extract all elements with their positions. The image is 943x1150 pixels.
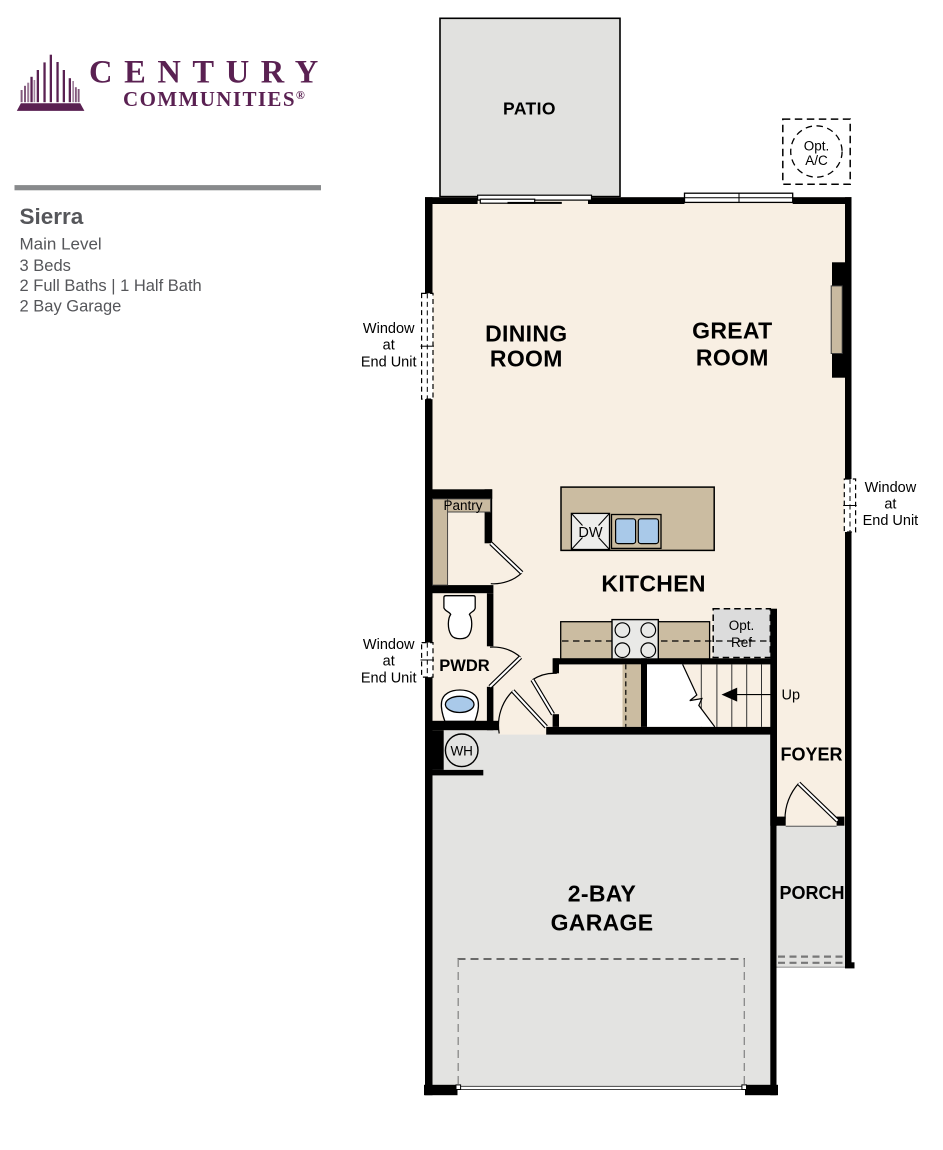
- svg-text:End Unit: End Unit: [863, 513, 919, 529]
- svg-text:ROOM: ROOM: [490, 346, 563, 372]
- svg-text:End Unit: End Unit: [361, 354, 417, 370]
- svg-text:ROOM: ROOM: [696, 345, 769, 371]
- svg-text:A/C: A/C: [805, 153, 828, 168]
- svg-text:Sierra: Sierra: [20, 204, 84, 229]
- svg-text:DW: DW: [578, 525, 602, 541]
- svg-text:at: at: [383, 654, 395, 670]
- svg-text:PWDR: PWDR: [439, 657, 489, 675]
- svg-text:COMMUNITIES®: COMMUNITIES®: [123, 87, 306, 111]
- svg-text:Ref: Ref: [731, 635, 752, 650]
- svg-text:Opt.: Opt.: [804, 139, 830, 154]
- svg-text:Main Level: Main Level: [20, 234, 102, 253]
- svg-text:at: at: [383, 338, 395, 354]
- svg-text:CENTURY: CENTURY: [89, 54, 330, 90]
- svg-text:3 Beds: 3 Beds: [20, 257, 71, 275]
- svg-text:Pantry: Pantry: [443, 498, 482, 513]
- svg-text:2 Full Baths | 1 Half Bath: 2 Full Baths | 1 Half Bath: [20, 277, 202, 295]
- svg-text:Up: Up: [782, 688, 801, 704]
- svg-text:End Unit: End Unit: [361, 670, 417, 686]
- svg-text:WH: WH: [450, 743, 473, 758]
- svg-text:Window: Window: [865, 480, 917, 496]
- svg-text:KITCHEN: KITCHEN: [601, 571, 705, 597]
- svg-text:Opt.: Opt.: [729, 618, 755, 633]
- svg-text:at: at: [884, 497, 896, 513]
- svg-text:DINING: DINING: [485, 321, 567, 347]
- svg-text:GREAT: GREAT: [692, 318, 772, 344]
- svg-text:GARAGE: GARAGE: [551, 910, 654, 936]
- svg-text:FOYER: FOYER: [780, 745, 842, 765]
- svg-text:Window: Window: [363, 637, 415, 653]
- svg-text:2-BAY: 2-BAY: [568, 881, 636, 907]
- svg-text:2 Bay Garage: 2 Bay Garage: [20, 298, 122, 316]
- svg-text:Window: Window: [363, 321, 415, 337]
- svg-text:PATIO: PATIO: [503, 99, 556, 119]
- svg-text:PORCH: PORCH: [779, 883, 844, 903]
